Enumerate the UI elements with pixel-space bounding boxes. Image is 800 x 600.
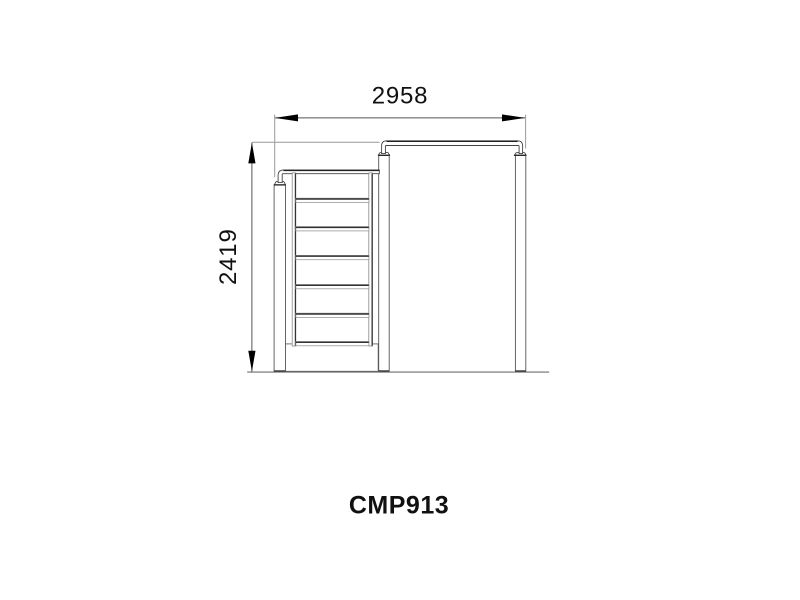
svg-text:CMP913: CMP913 (349, 492, 449, 520)
svg-text:2419: 2419 (215, 228, 242, 285)
svg-text:2958: 2958 (372, 83, 429, 110)
